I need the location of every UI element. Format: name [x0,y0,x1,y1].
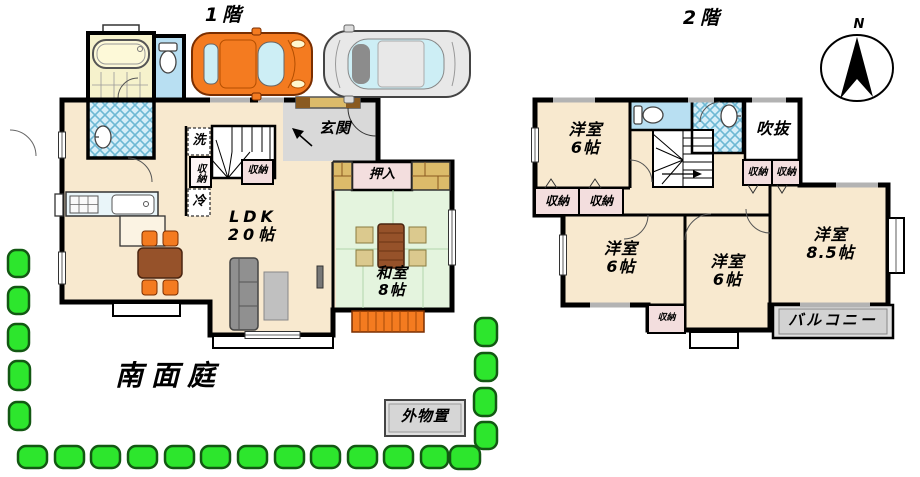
room-label-bedroom-sw: 洋室6帖 [581,240,661,276]
compass-icon [821,35,893,101]
room-label-ldk: LDK20帖 [203,208,303,244]
dining-table [138,248,182,278]
stove-icon [70,196,98,213]
storage-label-1f-tall: 収納 [194,159,204,187]
low-table [378,224,404,268]
room-label-void: 吹抜 [747,120,799,138]
garden-label: 南面庭 [115,360,223,391]
dining-chair [142,231,157,246]
dining-chair [163,280,178,295]
car-orange [192,28,312,100]
tv-icon [317,266,323,288]
kitchen-sink-icon [112,195,154,214]
dining-chair [142,280,157,295]
balcony-label: バルコニー [775,312,891,329]
sink-icon-1f [95,126,111,148]
toilet-room-1f [154,36,184,100]
storage-label-1f: 収納 [242,165,273,176]
room-label-bedroom-se: 洋室8.5帖 [788,226,873,262]
storage-label-2f: 収納 [579,195,623,208]
room-label-bedroom-nw: 洋室6帖 [548,121,623,157]
toilet-icon-2f [634,106,663,124]
sofa [230,258,258,330]
toilet-icon-1f [159,43,177,73]
bathroom [88,25,154,100]
floorplan-page: 1階 2階 N LDK20帖 和室8帖 玄関 押入 洗 収納 冷 収納 南面庭 … [0,0,920,477]
floor1-title: 1階 [185,5,265,26]
storage-label-2f: 収納 [648,313,685,323]
floorplan-drawing [0,0,920,477]
compass-north-label: N [851,18,867,33]
bathtub-icon [93,40,149,68]
dining-chair [163,231,178,246]
room-label-genkan: 玄関 [305,120,365,137]
laundry-label: 洗 [189,134,209,149]
storage-label-2f: 収納 [772,167,800,178]
room-label-oshiire: 押入 [352,168,412,183]
room-label-washitsu: 和室8帖 [350,265,434,299]
floor2-title: 2階 [668,8,738,29]
rug [264,272,288,320]
storage-label-2f: 収納 [535,195,579,208]
storage-label-2f: 収納 [743,167,772,178]
fridge-label: 冷 [189,195,209,210]
shed-label: 外物置 [385,408,465,425]
veranda-deck [352,311,424,332]
room-label-bedroom-s: 洋室6帖 [690,253,765,289]
garden-gate-arc [10,130,36,156]
car-silver [324,25,470,103]
